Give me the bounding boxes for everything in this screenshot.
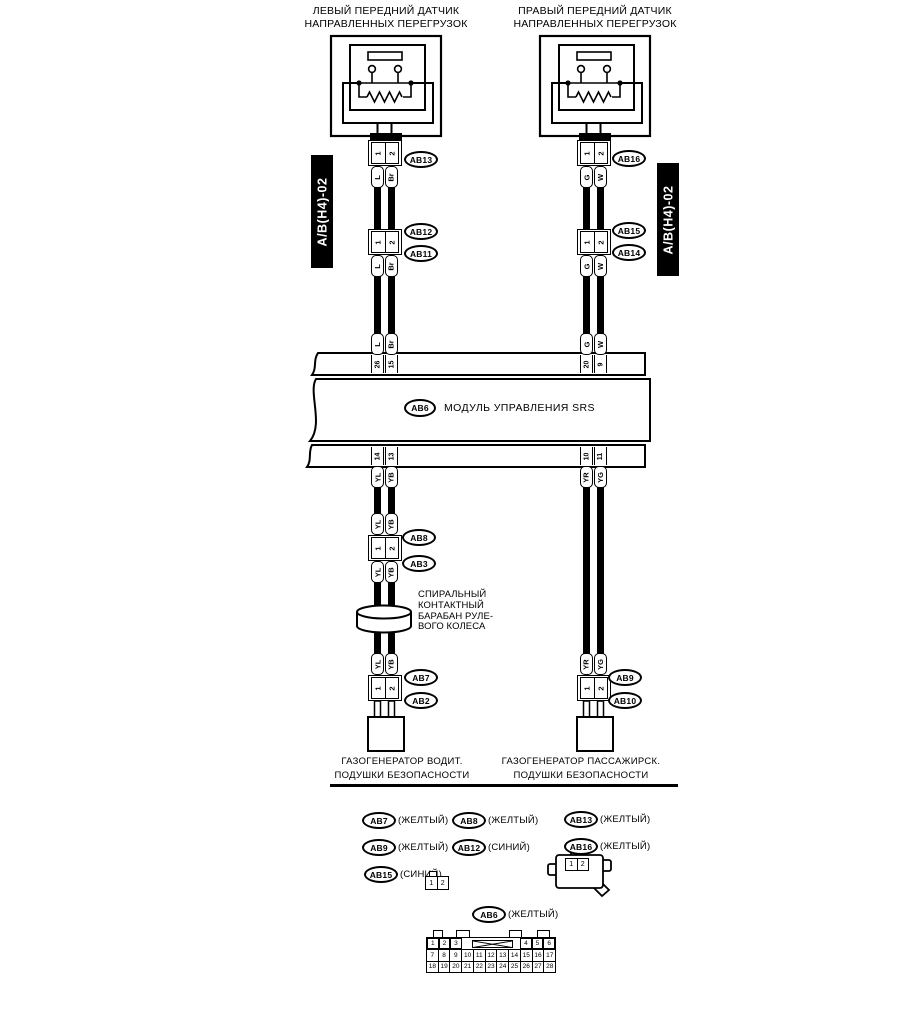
right-sensor-title-line2: НАПРАВЛЕННЫХ ПЕРЕГРУЗОК bbox=[495, 18, 695, 31]
ab6-pin: 5 bbox=[532, 938, 544, 949]
connector-pins: 1 2 bbox=[580, 231, 608, 253]
wire-color-label: L bbox=[371, 255, 384, 277]
gas-generators bbox=[368, 701, 613, 751]
passenger-airbag-caption: ГАЗОГЕНЕРАТОР ПАССАЖИРСК. ПОДУШКИ БЕЗОПА… bbox=[481, 755, 681, 782]
module-pin-number: 13 bbox=[388, 452, 395, 460]
legend-color-ab9: (ЖЕЛТЫЙ) bbox=[398, 839, 448, 856]
ab6-connector-face: 1 2 3 4 5 6 7 8 9 10 11 12 13 14 15 16 1… bbox=[426, 937, 556, 973]
module-pin-number: 10 bbox=[583, 452, 590, 460]
pin-number: 1 bbox=[583, 240, 592, 244]
wire-color-text: YL bbox=[373, 472, 382, 482]
wire-color-label: W bbox=[594, 166, 607, 188]
wire-segment bbox=[388, 273, 395, 336]
sensor-loop bbox=[343, 83, 433, 123]
ab6-pin: 19 bbox=[438, 961, 450, 972]
module-pin: 10 bbox=[580, 447, 593, 465]
wire-color-text: YR bbox=[582, 472, 591, 482]
harness-tag-left: A/B(H4)-02 bbox=[311, 155, 333, 268]
legend-tag-ab12: AB12 bbox=[452, 839, 486, 856]
module-pin-number: 20 bbox=[583, 360, 590, 368]
wire-color-text: YL bbox=[373, 567, 382, 577]
ab6-keyway-box bbox=[472, 940, 513, 949]
wire-segment bbox=[583, 486, 590, 655]
wire-color-text: W bbox=[596, 262, 605, 269]
wire-color-label: Br bbox=[385, 166, 398, 188]
pin-number: 1 bbox=[374, 546, 383, 550]
wire-segment bbox=[597, 486, 604, 655]
pin-cell: 1 bbox=[581, 232, 594, 252]
legend-color-ab13: (ЖЕЛТЫЙ) bbox=[600, 811, 650, 828]
wire-color-text: YB bbox=[387, 567, 396, 577]
module-pin: 9 bbox=[594, 355, 607, 373]
legend-tag-ab15: AB15 bbox=[364, 866, 398, 883]
tag-ab3: AB3 bbox=[402, 555, 436, 572]
pin-cell: 1 bbox=[566, 859, 577, 870]
harness-tag-left-label: A/B(H4)-02 bbox=[315, 177, 329, 246]
wire-segment bbox=[388, 186, 395, 232]
pin-cell: 1 bbox=[372, 538, 385, 558]
pin-cell: 2 bbox=[437, 877, 449, 889]
wire-segment bbox=[583, 273, 590, 336]
legend-tag-ab8: AB8 bbox=[452, 812, 486, 829]
connector-pins: 1 2 bbox=[371, 677, 399, 699]
sensor-contact bbox=[395, 66, 402, 73]
pin-number: 1 bbox=[374, 151, 383, 155]
resistor-lead bbox=[359, 83, 411, 97]
wire-color-text: W bbox=[596, 340, 605, 347]
ab6-pin: 1 bbox=[427, 938, 439, 949]
ab6-pin-row2: 7 8 9 10 11 12 13 14 15 16 17 bbox=[427, 949, 555, 960]
wire-color-text: L bbox=[373, 342, 382, 347]
connector-pins: 1 2 bbox=[371, 537, 399, 559]
ab6-pin: 18 bbox=[427, 961, 438, 972]
legend-tag-ab7: AB7 bbox=[362, 812, 396, 829]
left-sensor-title-line2: НАПРАВЛЕННЫХ ПЕРЕГРУЗОК bbox=[286, 18, 486, 31]
wire-segment bbox=[597, 186, 604, 232]
ab6-pin: 22 bbox=[473, 961, 485, 972]
tag-ab9: AB9 bbox=[608, 669, 642, 686]
wire-color-label: YR bbox=[580, 466, 593, 488]
legend-color-ab6: (ЖЕЛТЫЙ) bbox=[508, 906, 558, 923]
ab6-pin: 2 bbox=[439, 938, 451, 949]
ab6-pin: 14 bbox=[508, 949, 520, 960]
module-pin: 11 bbox=[594, 447, 607, 465]
wire-color-text: Br bbox=[387, 262, 396, 270]
pin-cell: 1 bbox=[372, 232, 385, 252]
pin-number: 2 bbox=[387, 546, 396, 550]
wire-color-text: YB bbox=[387, 472, 396, 482]
legend-tag-ab13: AB13 bbox=[564, 811, 598, 828]
pin-cell: 1 bbox=[581, 143, 594, 163]
sensor-contact bbox=[369, 66, 376, 73]
wire-color-text: YB bbox=[387, 659, 396, 669]
ab6-pin-row3: 18 19 20 21 22 23 24 25 26 27 28 bbox=[427, 961, 555, 972]
wire-color-text: G bbox=[582, 341, 591, 347]
wire-segment bbox=[374, 186, 381, 232]
wire-color-text: YB bbox=[387, 519, 396, 529]
wire-color-label: W bbox=[594, 333, 607, 355]
tag-ab12: AB12 bbox=[404, 223, 438, 240]
pin-cell: 1 bbox=[426, 877, 437, 889]
wire-color-text: L bbox=[373, 175, 382, 180]
caption-line: ГАЗОГЕНЕРАТОР ВОДИТ. bbox=[302, 755, 502, 769]
wire-color-label: YB bbox=[385, 466, 398, 488]
keyway-cross bbox=[473, 941, 512, 948]
housing-connector-2pin: 1 2 bbox=[565, 858, 589, 871]
module-pin-number: 15 bbox=[388, 360, 395, 368]
module-pin: 15 bbox=[385, 355, 398, 373]
spiral-drum-caption: СПИРАЛЬНЫЙ КОНТАКТНЫЙ БАРАБАН РУЛЕ- ВОГО… bbox=[418, 590, 493, 633]
pin-cell: 2 bbox=[385, 538, 399, 558]
wire-color-label: L bbox=[371, 166, 384, 188]
wire-color-text: Br bbox=[387, 173, 396, 181]
passenger-gas-generator-box bbox=[577, 717, 613, 751]
harness-tag-right: A/B(H4)-02 bbox=[657, 163, 679, 276]
ab6-pin: 13 bbox=[496, 949, 508, 960]
legend-color-ab12: (СИНИЙ) bbox=[488, 839, 530, 856]
ab6-pin: 8 bbox=[438, 949, 450, 960]
legend-color-ab7: (ЖЕЛТЫЙ) bbox=[398, 812, 448, 829]
pin-number: 1 bbox=[583, 151, 592, 155]
left-sensor-title: ЛЕВЫЙ ПЕРЕДНИЙ ДАТЧИК НАПРАВЛЕННЫХ ПЕРЕГ… bbox=[286, 5, 486, 30]
pin-number: 2 bbox=[596, 686, 605, 690]
legend-tag-ab9: AB9 bbox=[362, 839, 396, 856]
sensor-loop bbox=[552, 83, 642, 123]
ab6-pin: 25 bbox=[508, 961, 520, 972]
wire-color-label: YB bbox=[385, 653, 398, 675]
module-pin-number: 9 bbox=[597, 362, 604, 366]
legend-tag-ab16: AB16 bbox=[564, 838, 598, 855]
wire-color-text: YR bbox=[582, 659, 591, 669]
ab6-pin: 21 bbox=[461, 961, 473, 972]
wire-color-text: W bbox=[596, 173, 605, 180]
wire-segment bbox=[597, 273, 604, 336]
wire-color-label: W bbox=[594, 255, 607, 277]
connector-ab7-ab2: 1 2 bbox=[368, 675, 402, 701]
ab6-pin: 16 bbox=[532, 949, 544, 960]
wire-color-text: YG bbox=[596, 472, 605, 483]
wire-color-label: G bbox=[580, 166, 593, 188]
left-sensor-symbol bbox=[331, 36, 441, 136]
module-pin: 26 bbox=[371, 355, 384, 373]
sensor-inner-box bbox=[350, 45, 425, 110]
sensor-inner-box bbox=[559, 45, 634, 110]
wire-color-label: G bbox=[580, 333, 593, 355]
ab6-pin: 10 bbox=[461, 949, 473, 960]
ab6-pin: 24 bbox=[496, 961, 508, 972]
ab6-pin: 7 bbox=[427, 949, 438, 960]
wire-segment bbox=[583, 186, 590, 232]
wire-color-label: Br bbox=[385, 255, 398, 277]
wire-color-label: YB bbox=[385, 561, 398, 583]
wire-segment bbox=[388, 486, 395, 515]
tag-ab16: AB16 bbox=[612, 150, 646, 167]
ab6-pin: 12 bbox=[485, 949, 497, 960]
sensor-link bbox=[568, 73, 620, 84]
left-sensor-title-line1: ЛЕВЫЙ ПЕРЕДНИЙ ДАТЧИК bbox=[286, 5, 486, 18]
right-sensor-title-line1: ПРАВЫЙ ПЕРЕДНИЙ ДАТЧИК bbox=[495, 5, 695, 18]
connector-ab12-ab11: 1 2 bbox=[368, 229, 402, 255]
module-pin-number: 11 bbox=[597, 452, 604, 459]
module-pin: 14 bbox=[371, 447, 384, 465]
wire-color-label: YG bbox=[594, 653, 607, 675]
pin-cell: 2 bbox=[594, 232, 608, 252]
sensor-link bbox=[359, 73, 411, 84]
pin-cell: 2 bbox=[594, 143, 608, 163]
ab6-pin: 20 bbox=[449, 961, 461, 972]
wire-segment bbox=[374, 273, 381, 336]
caption-line: ПОДУШКИ БЕЗОПАСНОСТИ bbox=[302, 769, 502, 783]
wire-color-text: L bbox=[373, 264, 382, 269]
pin-cell: 1 bbox=[372, 678, 385, 698]
wire-color-label: YL bbox=[371, 466, 384, 488]
ab6-pin: 26 bbox=[520, 961, 532, 972]
squib-lead bbox=[375, 701, 381, 717]
pin-cell: 2 bbox=[385, 678, 399, 698]
tag-ab14: AB14 bbox=[612, 244, 646, 261]
wire-color-label: YL bbox=[371, 653, 384, 675]
ab6-pin: 9 bbox=[449, 949, 461, 960]
sensor-exit-leads bbox=[378, 123, 392, 134]
connector-ab16: 1 2 bbox=[577, 140, 611, 166]
ab6-pin: 17 bbox=[543, 949, 555, 960]
ab6-pin: 3 bbox=[450, 938, 462, 949]
wire-color-text: G bbox=[582, 263, 591, 269]
sensor-mass-bar bbox=[577, 52, 611, 60]
pin-number: 2 bbox=[596, 240, 605, 244]
tag-ab13: AB13 bbox=[404, 151, 438, 168]
diagram-linework bbox=[0, 0, 900, 1032]
module-pin-number: 14 bbox=[374, 452, 381, 460]
wire-color-label: YG bbox=[594, 466, 607, 488]
caption-line: ПОДУШКИ БЕЗОПАСНОСТИ bbox=[481, 769, 681, 783]
legend-color-ab8: (ЖЕЛТЫЙ) bbox=[488, 812, 538, 829]
wire-color-label: YL bbox=[371, 513, 384, 535]
tag-ab6-module: AB6 bbox=[404, 399, 436, 417]
pin-cell: 2 bbox=[385, 143, 399, 163]
connector-ab15-ab14: 1 2 bbox=[577, 229, 611, 255]
ab6-pin: 4 bbox=[520, 938, 532, 949]
legend-tag-ab6: AB6 bbox=[472, 906, 506, 923]
wire-color-label: YR bbox=[580, 653, 593, 675]
pin-number: 2 bbox=[387, 240, 396, 244]
pin-number: 2 bbox=[387, 686, 396, 690]
sensor-mass-bar bbox=[368, 52, 402, 60]
small-connector-2pin: 1 2 bbox=[425, 876, 449, 890]
wire-color-label: Br bbox=[385, 333, 398, 355]
wire-color-text: YL bbox=[373, 659, 382, 669]
tag-ab2: AB2 bbox=[404, 692, 438, 709]
tag-ab15: AB15 bbox=[612, 222, 646, 239]
connector-pins: 1 2 bbox=[580, 677, 608, 699]
legend-separator bbox=[330, 784, 678, 787]
tag-ab8: AB8 bbox=[402, 529, 436, 546]
connector-ab9-ab10: 1 2 bbox=[577, 675, 611, 701]
ab6-pin: 6 bbox=[543, 938, 555, 949]
connector-ab8-ab3: 1 2 bbox=[368, 535, 402, 561]
resistor-zigzag bbox=[576, 92, 611, 102]
pin-cell: 2 bbox=[577, 859, 589, 870]
ab6-pin: 15 bbox=[520, 949, 532, 960]
connector-pins: 1 2 bbox=[580, 142, 608, 164]
right-sensor-title: ПРАВЫЙ ПЕРЕДНИЙ ДАТЧИК НАПРАВЛЕННЫХ ПЕРЕ… bbox=[495, 5, 695, 30]
resistor-lead bbox=[568, 83, 620, 97]
pin-cell: 2 bbox=[385, 232, 399, 252]
sensor-exit-leads bbox=[587, 123, 601, 134]
sensor-contact bbox=[604, 66, 611, 73]
squib-lead bbox=[389, 701, 395, 717]
drum-top bbox=[357, 606, 411, 619]
wire-color-label: G bbox=[580, 255, 593, 277]
ab6-pin: 27 bbox=[532, 961, 544, 972]
driver-airbag-caption: ГАЗОГЕНЕРАТОР ВОДИТ. ПОДУШКИ БЕЗОПАСНОСТ… bbox=[302, 755, 502, 782]
wire-color-text: YG bbox=[596, 659, 605, 670]
wire-segment bbox=[374, 486, 381, 515]
ab6-pin: 23 bbox=[485, 961, 497, 972]
pin-number: 2 bbox=[387, 151, 396, 155]
drum-caption-line: КОНТАКТНЫЙ bbox=[418, 601, 493, 612]
module-label: МОДУЛЬ УПРАВЛЕНИЯ SRS bbox=[444, 402, 595, 414]
tag-ab7: AB7 bbox=[404, 669, 438, 686]
wire-color-label: YB bbox=[385, 513, 398, 535]
spiral-drum bbox=[357, 606, 411, 633]
connector-ab13: 1 2 bbox=[368, 140, 402, 166]
right-sensor-symbol bbox=[540, 36, 650, 136]
pin-cell: 1 bbox=[372, 143, 385, 163]
caption-line: ГАЗОГЕНЕРАТОР ПАССАЖИРСК. bbox=[481, 755, 681, 769]
legend-housing-drawing bbox=[548, 850, 611, 896]
wire-color-text: G bbox=[582, 174, 591, 180]
pin-cell: 1 bbox=[581, 678, 594, 698]
squib-lead bbox=[598, 701, 604, 717]
wiring-diagram-page: ЛЕВЫЙ ПЕРЕДНИЙ ДАТЧИК НАПРАВЛЕННЫХ ПЕРЕГ… bbox=[0, 0, 900, 1032]
module-pin-number: 26 bbox=[374, 360, 381, 368]
tag-ab10: AB10 bbox=[608, 692, 642, 709]
ab6-pin: 28 bbox=[543, 961, 555, 972]
pin-number: 1 bbox=[374, 686, 383, 690]
wire-color-label: YL bbox=[371, 561, 384, 583]
wire-color-text: YL bbox=[373, 519, 382, 529]
pin-number: 1 bbox=[583, 686, 592, 690]
legend-color-ab16: (ЖЕЛТЫЙ) bbox=[600, 838, 650, 855]
harness-tag-right-label: A/B(H4)-02 bbox=[661, 185, 675, 254]
drum-caption-line: ВОГО КОЛЕСА bbox=[418, 622, 493, 633]
wire-color-label: L bbox=[371, 333, 384, 355]
pin-number: 1 bbox=[374, 240, 383, 244]
squib-lead bbox=[584, 701, 590, 717]
pin-number: 2 bbox=[596, 151, 605, 155]
resistor-zigzag bbox=[367, 92, 402, 102]
driver-gas-generator-box bbox=[368, 717, 404, 751]
wire-color-text: Br bbox=[387, 340, 396, 348]
ab6-pin: 11 bbox=[473, 949, 485, 960]
connector-pins: 1 2 bbox=[371, 231, 399, 253]
module-pin: 13 bbox=[385, 447, 398, 465]
connector-ab13-pins: 1 2 bbox=[371, 142, 399, 164]
tag-ab11: AB11 bbox=[404, 245, 438, 262]
module-pin: 20 bbox=[580, 355, 593, 373]
pin-cell: 2 bbox=[594, 678, 608, 698]
sensor-contact bbox=[578, 66, 585, 73]
